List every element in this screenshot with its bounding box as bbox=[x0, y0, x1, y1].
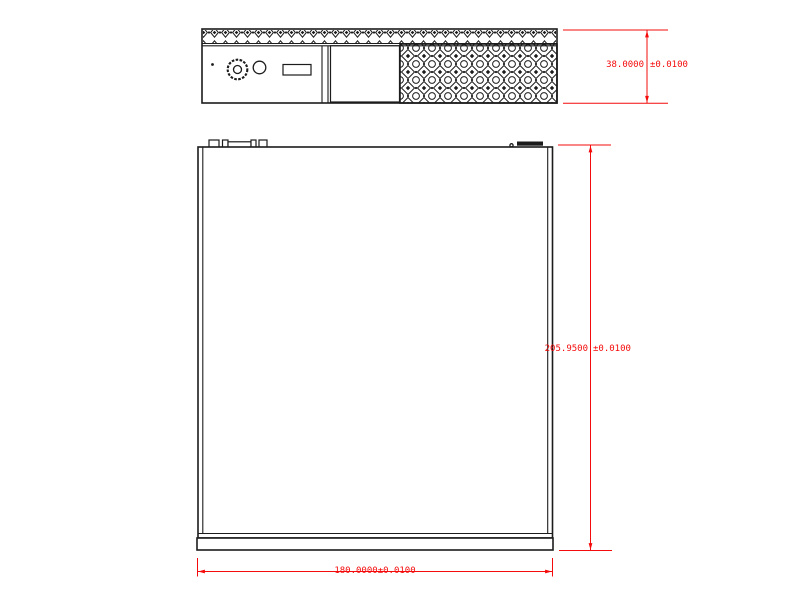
grille-panel bbox=[400, 44, 557, 103]
body-depth-value: 205.9500 bbox=[544, 344, 588, 354]
push-button bbox=[253, 61, 266, 74]
blank-module bbox=[331, 46, 400, 102]
top-vent-band bbox=[203, 30, 556, 43]
top-view bbox=[197, 140, 553, 550]
body-depth-tolerance: ±0.0100 bbox=[593, 344, 631, 354]
body-width-tolerance: ±0.0100 bbox=[378, 566, 416, 576]
front-height-tolerance: ±0.0100 bbox=[650, 60, 688, 70]
cad-canvas: 38.0000 ±0.0100 205.9500 ±0.0100 180.000… bbox=[0, 0, 800, 600]
front-bezel-edge bbox=[197, 538, 553, 550]
display-window bbox=[283, 65, 311, 76]
led-indicator bbox=[211, 63, 214, 66]
control-knob-center bbox=[234, 66, 242, 74]
front-height-value: 38.0000 bbox=[604, 60, 644, 70]
body-outline bbox=[198, 147, 553, 538]
front-view bbox=[202, 29, 557, 103]
drawing-svg bbox=[0, 0, 800, 600]
body-width-value: 180.0000 bbox=[334, 566, 377, 576]
body-width-dimension: 180.0000±0.0100 bbox=[332, 566, 418, 576]
rear-bar bbox=[517, 142, 543, 146]
